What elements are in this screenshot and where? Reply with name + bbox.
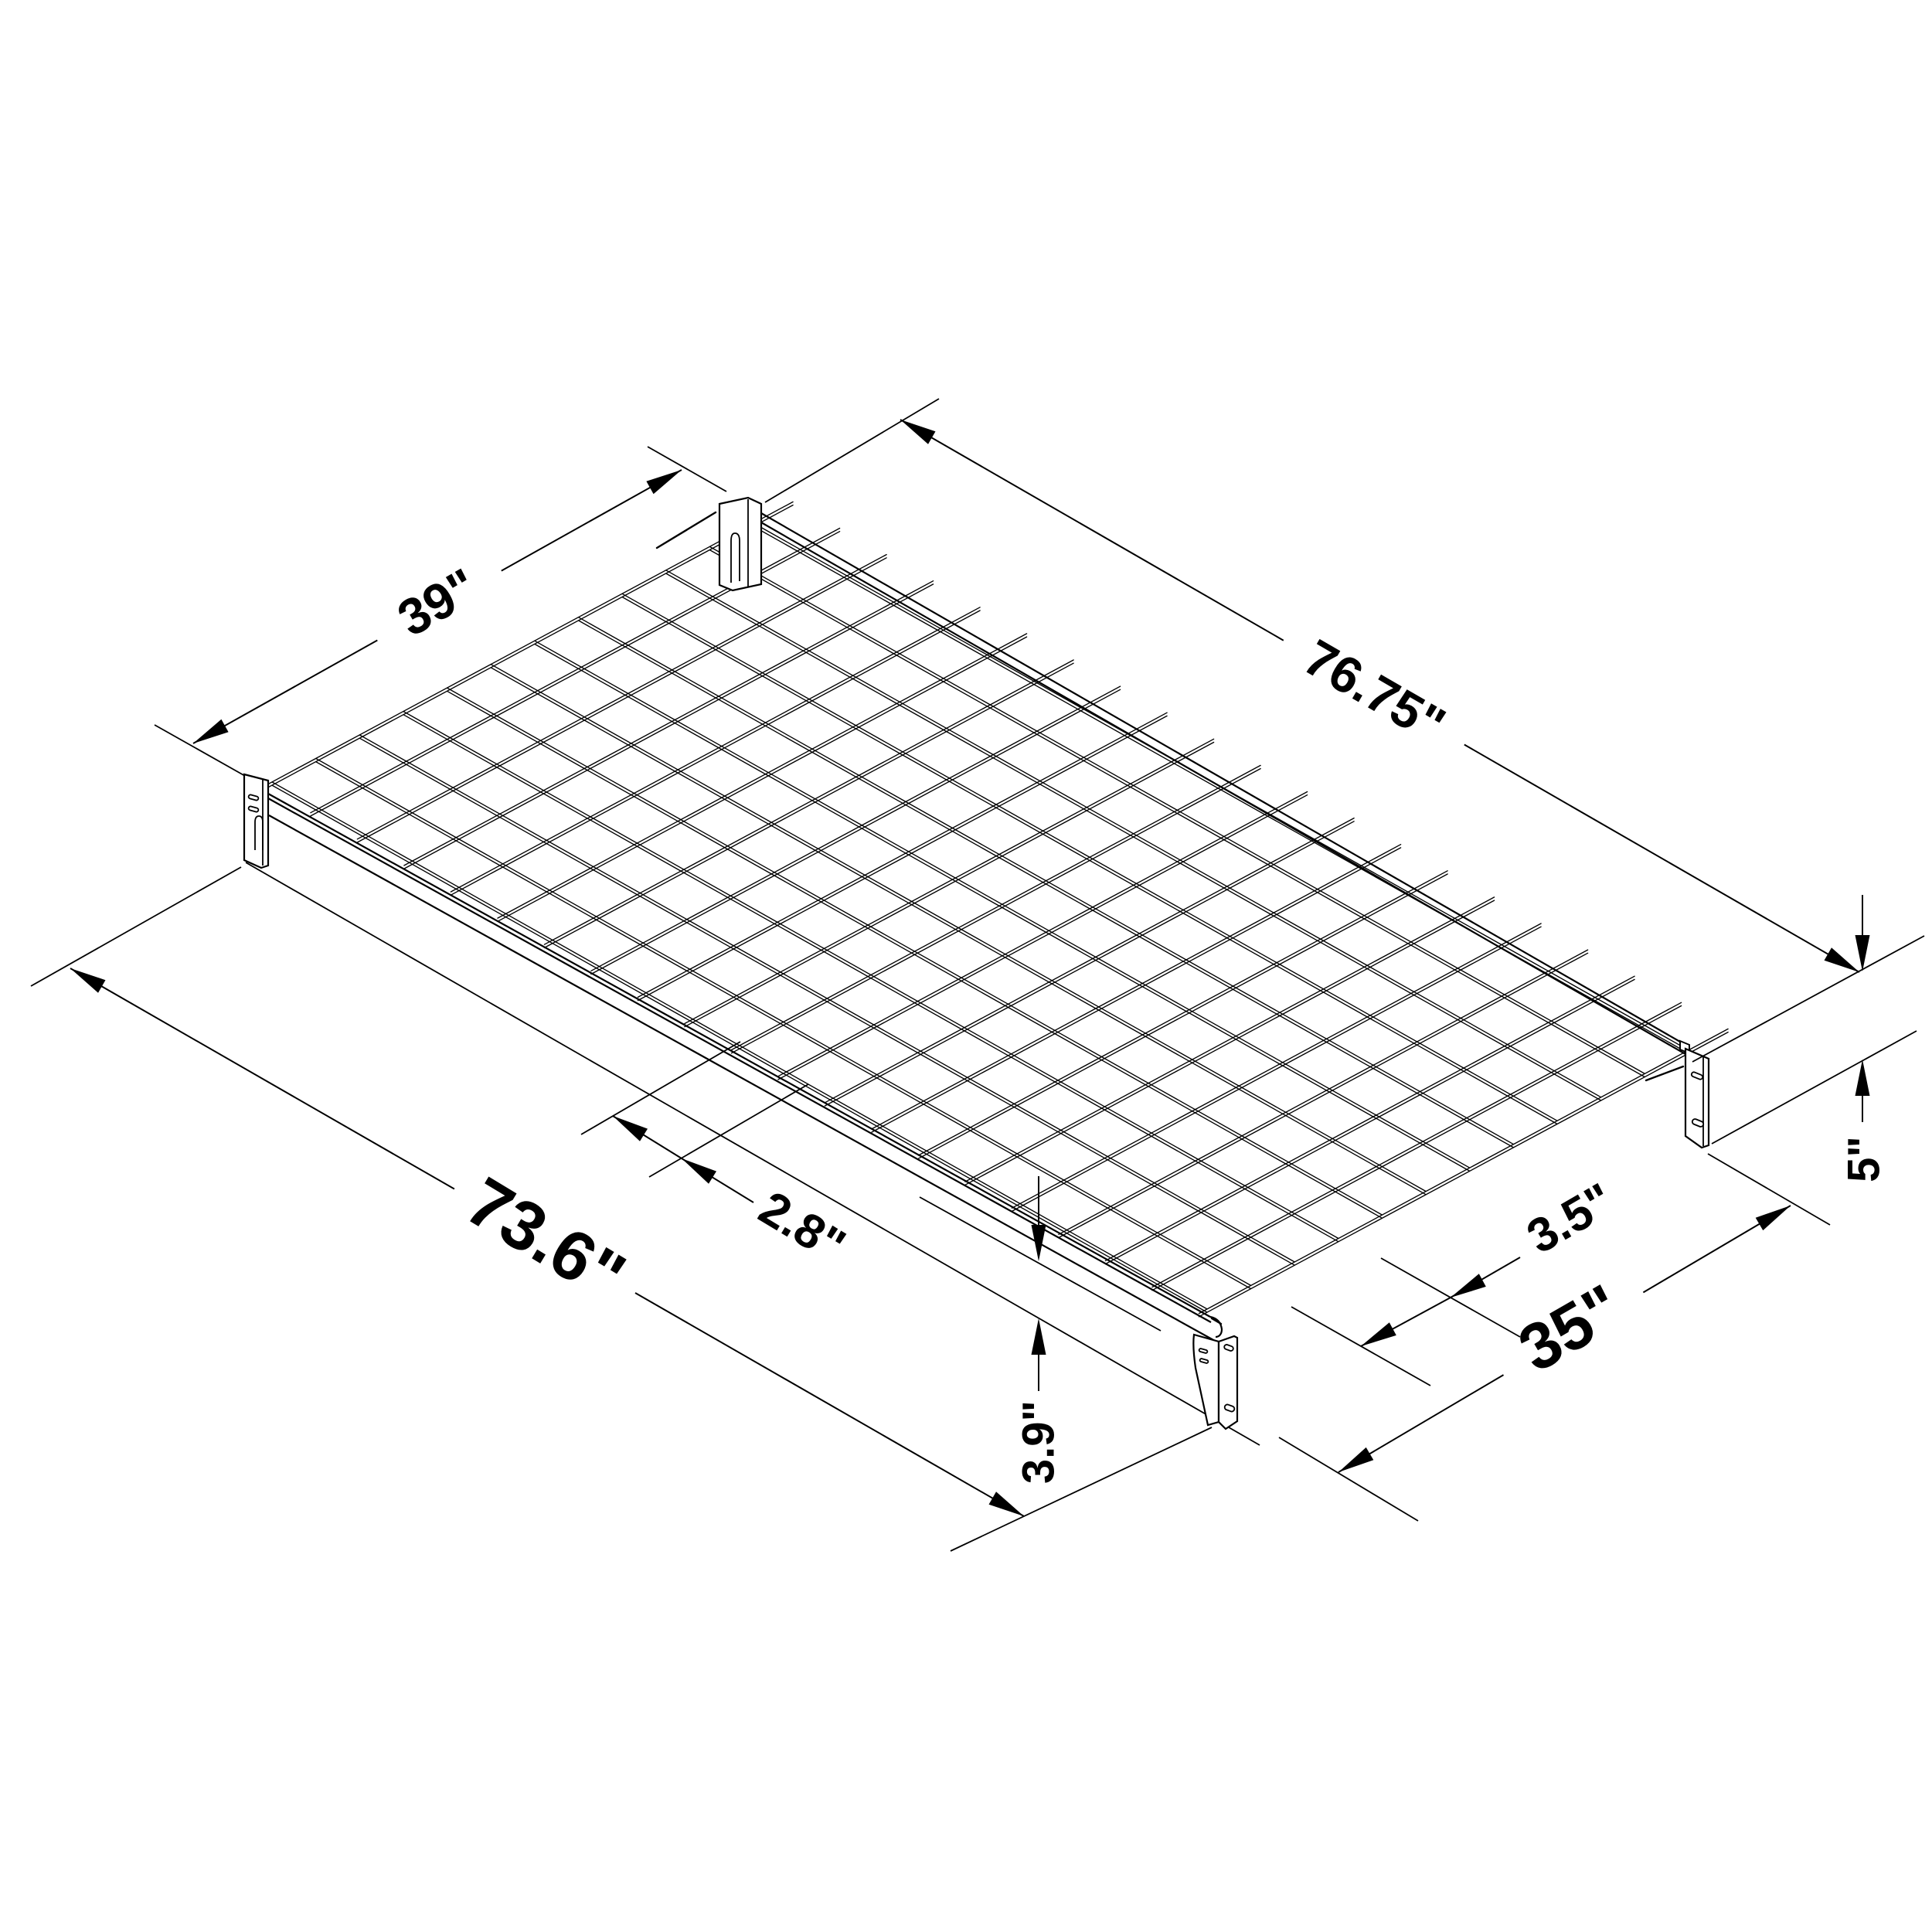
svg-text:5": 5" [1839,1136,1889,1182]
svg-text:3.9": 3.9" [1014,1400,1064,1484]
